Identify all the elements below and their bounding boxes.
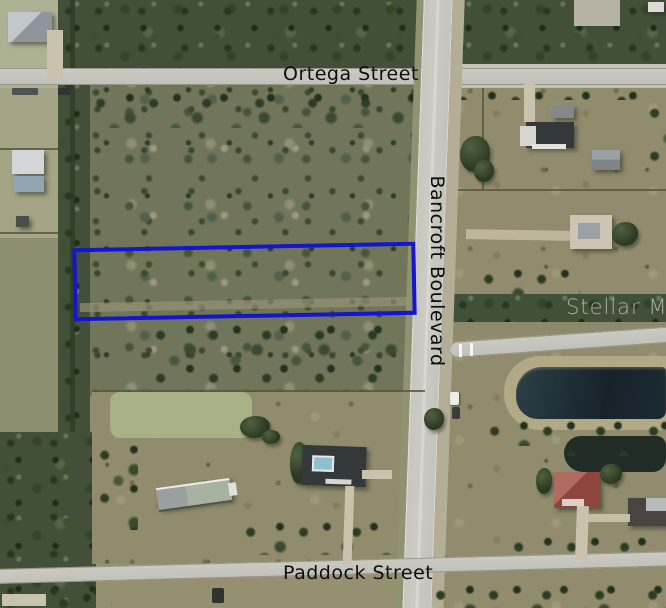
tree-br-1 xyxy=(536,468,552,494)
right-edge-trees xyxy=(644,96,666,176)
fence-left-upper xyxy=(0,148,58,150)
house-bottom-right-porch xyxy=(562,499,584,506)
pool xyxy=(312,455,335,472)
crosswalk-marking-1 xyxy=(459,344,462,357)
barn-bottom-right xyxy=(628,498,666,526)
house-mid-right-roof-section xyxy=(578,223,600,239)
scrub-dark-band-upper xyxy=(90,86,424,128)
vehicles-parked-left xyxy=(12,88,38,95)
tree-pasture-2 xyxy=(262,430,280,444)
tree-cluster-above-canal xyxy=(478,262,580,296)
pond xyxy=(516,367,666,419)
trees-on-small-pond xyxy=(560,438,666,456)
pool-house-porch xyxy=(325,479,351,485)
pasture-left-trees xyxy=(94,438,138,530)
fence-left-lower xyxy=(0,232,58,234)
vehicle-white-truck xyxy=(450,392,459,405)
fence-pasture-north xyxy=(92,390,425,392)
watermark-stellar-mls: Stellar MLS xyxy=(566,295,666,319)
trailer-white xyxy=(12,150,44,174)
vehicle-dark-car xyxy=(452,407,460,419)
trailer-blue xyxy=(14,176,44,192)
tree-br-2 xyxy=(600,464,622,484)
vehicle-below-paddock xyxy=(212,588,224,603)
driveway-bottom-left xyxy=(2,594,46,606)
structure-top-right-corner xyxy=(648,2,664,12)
house-mid-right xyxy=(570,215,612,249)
tree-right-field-2 xyxy=(474,160,494,182)
parcel-outline xyxy=(72,242,416,322)
driveway-bottom-right xyxy=(575,506,589,560)
tree-mid-right xyxy=(612,222,638,246)
street-label-bancroft: Bancroft Boulevard xyxy=(426,175,448,366)
house-with-pool xyxy=(301,445,366,487)
green-field xyxy=(110,392,252,438)
aerial-map: Ortega Street Bancroft Boulevard Paddock… xyxy=(0,0,666,608)
house-top-left xyxy=(8,12,52,42)
shed-upper-right xyxy=(592,150,620,170)
driveway-upper-right xyxy=(524,84,535,122)
shed-upper-right-small xyxy=(552,105,574,118)
driveway-bottom-right-branch xyxy=(588,514,630,522)
clearing-top-right xyxy=(574,0,620,26)
top-forest-right xyxy=(450,0,666,66)
driveway-mid-right xyxy=(466,229,572,241)
driveway-pool-house-east xyxy=(362,470,392,479)
house-upper-right xyxy=(520,120,580,150)
scrub-dark-band-lower xyxy=(150,318,422,390)
house-upper-right-garage xyxy=(520,126,536,146)
fence-horizontal-upper xyxy=(452,189,666,191)
barn-bottom-right-shed xyxy=(646,498,666,511)
driveway-top-left xyxy=(47,30,63,78)
shed-left xyxy=(16,216,29,227)
crosswalk-marking-2 xyxy=(470,343,473,356)
top-forest-left xyxy=(88,0,425,70)
street-label-paddock: Paddock Street xyxy=(283,562,433,584)
vehicle-left-2 xyxy=(58,88,70,95)
trees-below-paddock-right xyxy=(430,578,666,608)
barn-extension xyxy=(228,482,238,496)
house-upper-right-porch xyxy=(532,144,566,149)
street-label-ortega: Ortega Street xyxy=(283,63,419,85)
tree-pasture-3 xyxy=(424,408,444,430)
house-bottom-right xyxy=(554,472,600,508)
